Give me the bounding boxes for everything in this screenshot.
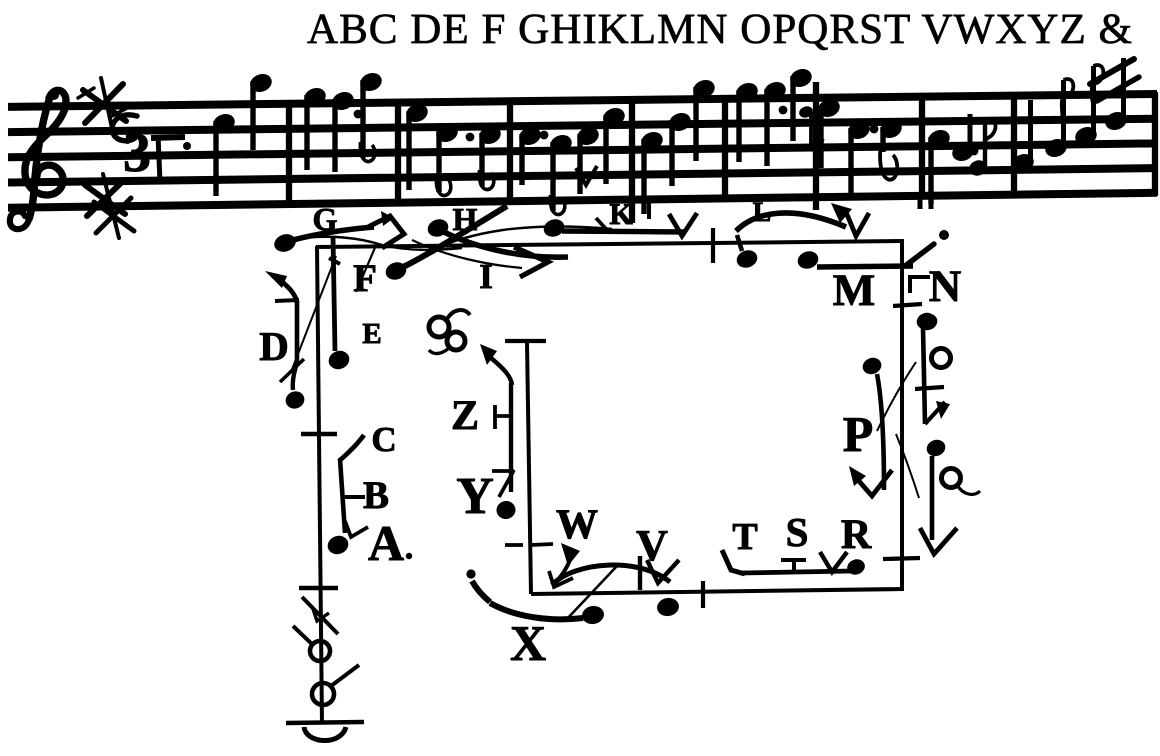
svg-text:P: P — [843, 406, 874, 462]
svg-text:M: M — [833, 265, 875, 315]
svg-text:Z: Z — [451, 393, 479, 439]
svg-text:N: N — [929, 261, 962, 311]
svg-text:X: X — [510, 615, 546, 671]
svg-text:Y: Y — [456, 468, 494, 525]
svg-text:A: A — [368, 515, 404, 571]
svg-text:D: D — [259, 323, 289, 369]
svg-text:T: T — [732, 516, 757, 558]
svg-text:B: B — [363, 474, 389, 517]
svg-text:K: K — [609, 198, 633, 231]
svg-text:F: F — [353, 257, 377, 300]
svg-text:S: S — [786, 509, 809, 555]
svg-text:3: 3 — [123, 122, 151, 184]
svg-text:E: E — [362, 318, 381, 350]
svg-text:W: W — [556, 502, 598, 548]
svg-text:ABC DE F GHIKLMN OPQRST VWXYZ: ABC DE F GHIKLMN OPQRST VWXYZ & — [307, 6, 1133, 53]
svg-text:C: C — [371, 420, 396, 459]
